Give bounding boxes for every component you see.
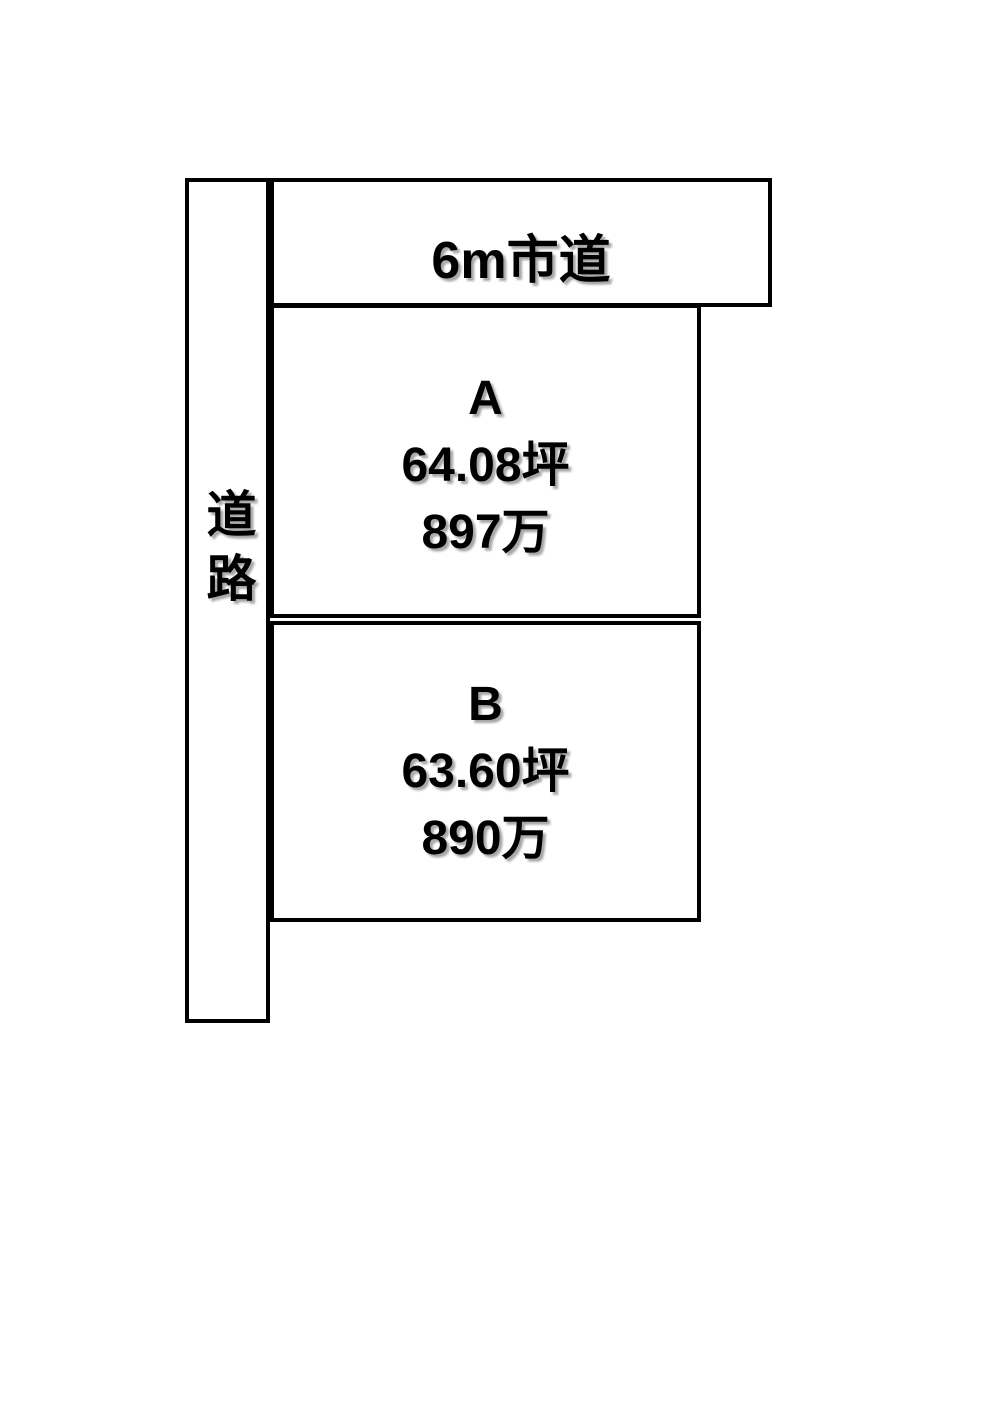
plot-a-price: 897万 bbox=[421, 499, 549, 566]
plot-b-rect: B 63.60坪 890万 bbox=[270, 621, 701, 922]
road-left-label: 道路 bbox=[203, 488, 253, 616]
city-road-rect: 6m市道 bbox=[270, 178, 772, 307]
road-left-rect: 道路 bbox=[185, 178, 270, 1023]
land-plot-diagram: 道路 6m市道 A 64.08坪 897万 B 63.60坪 890万 bbox=[0, 0, 1000, 1413]
city-road-label: 6m市道 bbox=[431, 218, 610, 293]
plot-a-id: A bbox=[468, 365, 503, 432]
plot-a-area: 64.08坪 bbox=[401, 432, 569, 499]
plot-b-id: B bbox=[468, 671, 503, 738]
plot-b-area: 63.60坪 bbox=[401, 738, 569, 805]
plot-b-price: 890万 bbox=[421, 805, 549, 872]
plot-a-rect: A 64.08坪 897万 bbox=[270, 304, 701, 618]
